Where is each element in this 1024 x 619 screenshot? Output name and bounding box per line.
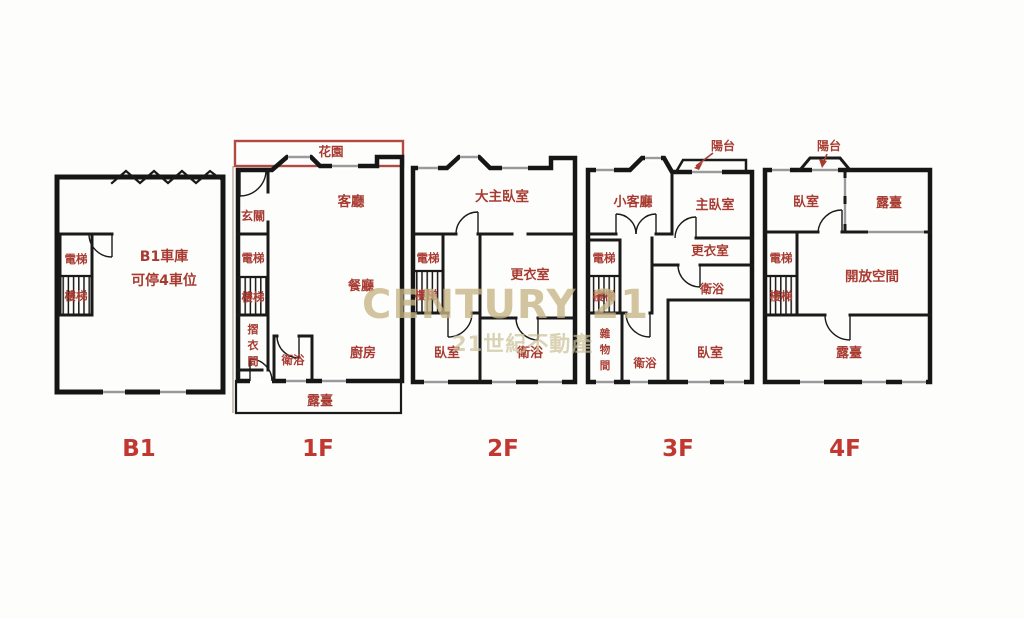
room-label-garage: B1車庫 [140, 248, 188, 265]
floor-label-b1: B1 [122, 436, 156, 462]
room-label-fold-3: 間 [248, 355, 259, 368]
room-label-stairs: 樓梯 [65, 289, 88, 303]
century21-watermark: CENTURY 21 [362, 282, 649, 328]
3f-outer-wall [588, 158, 752, 382]
room-label-elevator: 電梯 [593, 251, 616, 265]
room-label-terrace-lower: 露臺 [836, 345, 862, 361]
floorplan-4f: 陽台 臥室 露臺 電梯 樓梯 開放空間 露臺 4F [765, 138, 930, 462]
room-label-elevator: 電梯 [417, 251, 440, 265]
room-label-garden: 花園 [318, 144, 343, 159]
room-label-closet: 更衣室 [510, 267, 549, 283]
floor-label-4f: 4F [829, 436, 861, 462]
2f-master-door-arc [456, 212, 478, 234]
1f-entry-door-arc [240, 170, 266, 196]
room-label-stairs: 樓梯 [770, 289, 793, 303]
room-label-elevator: 電梯 [242, 251, 265, 265]
century21-watermark-sub: 21世紀不動產 [452, 328, 593, 358]
room-label-living: 小客廳 [613, 194, 652, 210]
balcony-arrowhead [819, 159, 827, 168]
3f-double-door-arc-left [616, 214, 636, 234]
room-label-master: 主臥室 [695, 197, 734, 213]
room-label-kitchen: 廚房 [350, 345, 376, 361]
room-label-balcony: 陽台 [817, 138, 841, 153]
room-label-entry: 玄關 [241, 208, 265, 223]
3f-double-door-arc-right [636, 214, 656, 234]
room-label-closet: 更衣室 [691, 243, 729, 258]
floor-label-2f: 2F [487, 436, 519, 462]
3f-closet-door-arc [675, 217, 696, 238]
floorplan-image: CENTURY 21 21世紀不動產 電梯 樓梯 B1車庫 可停4車位 B1 [0, 0, 1024, 619]
room-label-bedroom: 臥室 [793, 194, 819, 210]
room-label-living: 客廳 [337, 193, 365, 210]
room-label-elevator: 電梯 [65, 252, 88, 266]
room-label-fold-2: 衣 [248, 338, 260, 352]
4f-bedroom-door-arc [818, 210, 842, 232]
room-label-terrace-upper: 露臺 [876, 195, 902, 211]
room-label-master: 大主臥室 [475, 188, 529, 205]
room-label-storage-1: 雜 [600, 327, 611, 340]
room-label-fold-1: 摺 [248, 322, 259, 336]
room-label-balcony: 陽台 [711, 138, 735, 153]
room-label-stairs: 樓梯 [242, 290, 265, 304]
floor-label-3f: 3F [662, 436, 694, 462]
room-label-bedroom: 臥室 [697, 345, 723, 361]
room-label-open-space: 開放空間 [845, 268, 899, 285]
room-label-terrace: 露臺 [307, 393, 333, 409]
4f-terrace-door-arc [825, 315, 850, 340]
room-label-storage-3: 間 [600, 360, 611, 372]
room-label-elevator: 電梯 [770, 251, 793, 265]
3f-bath-door-arc [678, 265, 700, 287]
room-label-bath-lower: 衛浴 [633, 356, 657, 370]
floor-label-1f: 1F [302, 436, 334, 462]
room-label-bath: 衛浴 [281, 353, 305, 367]
room-label-storage-2: 物 [600, 343, 611, 356]
room-label-bath-upper: 衛浴 [699, 281, 725, 296]
1f-outer-wall [238, 157, 402, 381]
floorplan-b1: 電梯 樓梯 B1車庫 可停4車位 B1 [57, 171, 223, 462]
room-label-garage-capacity: 可停4車位 [131, 272, 197, 289]
